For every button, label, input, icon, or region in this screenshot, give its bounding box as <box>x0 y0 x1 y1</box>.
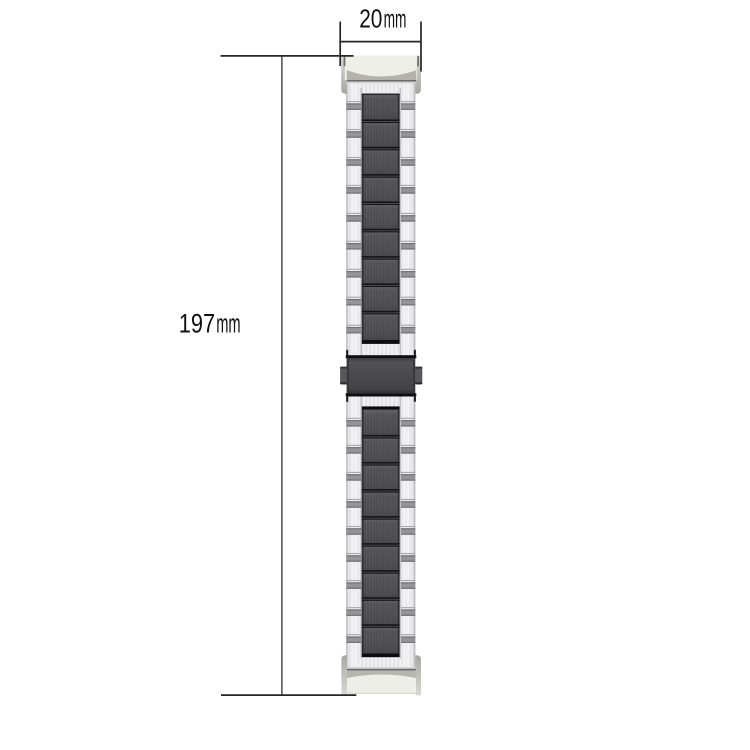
svg-text:mm: mm <box>384 3 407 33</box>
svg-text:mm: mm <box>216 308 240 338</box>
svg-text:197: 197 <box>179 309 215 339</box>
svg-text:20: 20 <box>359 3 382 33</box>
